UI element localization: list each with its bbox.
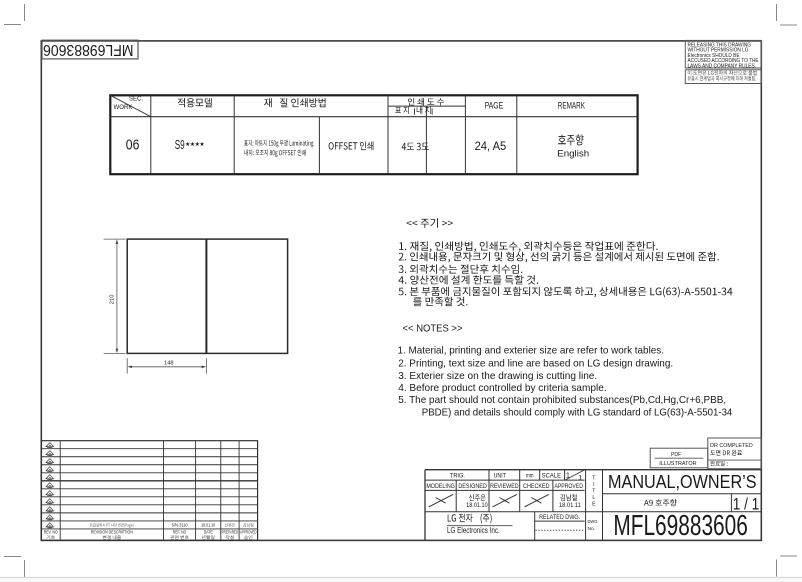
svg-text:18.01.10: 18.01.10 xyxy=(466,503,488,509)
svg-text:APPROVED: APPROVED xyxy=(240,530,257,535)
svg-text:2. Printing, text size and lin: 2. Printing, text size and line are base… xyxy=(398,359,673,370)
svg-text:3. Exterier size on the drawin: 3. Exterier size on the drawing is cutti… xyxy=(398,371,597,382)
svg-text:18.01.10: 18.01.10 xyxy=(201,523,216,528)
svg-text:MFL69883606: MFL69883606 xyxy=(613,510,748,542)
svg-text:1: 1 xyxy=(578,473,582,482)
svg-text:CHECKED: CHECKED xyxy=(523,483,550,490)
svg-text:DATE: DATE xyxy=(204,530,213,535)
svg-text:LAWS AND COMPANY RULES.: LAWS AND COMPANY RULES. xyxy=(688,63,757,69)
svg-text:24, A5: 24, A5 xyxy=(475,139,507,153)
svg-text:DESIGNED: DESIGNED xyxy=(458,483,487,490)
svg-text:mm: mm xyxy=(526,472,534,479)
svg-text:PDF: PDF xyxy=(671,452,681,458)
svg-text:1. Material, printing and exte: 1. Material, printing and exterier size … xyxy=(398,345,665,356)
svg-text:MODELING: MODELING xyxy=(426,483,455,490)
svg-text:E: E xyxy=(592,502,596,508)
svg-text:L: L xyxy=(592,495,595,501)
svg-text:PAGE: PAGE xyxy=(485,101,504,111)
svg-text:UNIT: UNIT xyxy=(494,472,506,479)
svg-text:LG Electronics Inc.: LG Electronics Inc. xyxy=(447,526,500,535)
svg-text:MFL69883606: MFL69883606 xyxy=(43,41,134,58)
svg-text:06: 06 xyxy=(126,137,140,153)
svg-text:SEC.: SEC. xyxy=(129,96,143,103)
svg-text:210: 210 xyxy=(109,295,115,305)
svg-text:5. The part should not contain: 5. The part should not contain prohibite… xyxy=(398,395,726,406)
svg-text:SCALE: SCALE xyxy=(542,472,562,479)
svg-text:148: 148 xyxy=(164,360,174,366)
svg-text:MANUAL,OWNER’S: MANUAL,OWNER’S xyxy=(608,471,757,492)
svg-text:TRIG.: TRIG. xyxy=(450,472,465,479)
svg-text:I: I xyxy=(593,482,594,488)
svg-text:S9: S9 xyxy=(175,137,185,152)
svg-text:<< NOTES >>: << NOTES >> xyxy=(403,324,463,335)
svg-text:DR COMPLETED: DR COMPLETED xyxy=(710,443,753,449)
svg-text:REMARK: REMARK xyxy=(558,101,585,111)
svg-text:RELATED DWG.: RELATED DWG. xyxy=(539,514,580,521)
svg-text:DWG.: DWG. xyxy=(588,519,599,525)
svg-text:WORK: WORK xyxy=(114,104,133,111)
svg-text:PREPARED: PREPARED xyxy=(222,530,239,535)
svg-text:APPROVED: APPROVED xyxy=(554,483,583,490)
svg-text:REVISION DESCRIPTION: REVISION DESCRIPTION xyxy=(91,530,133,535)
svg-text:No.: No. xyxy=(588,526,596,532)
svg-text:4. Before product controlled b: 4. Before product controlled by criteria… xyxy=(398,383,607,394)
svg-text:REV. NO: REV. NO xyxy=(44,530,59,535)
svg-text:18.01.11: 18.01.11 xyxy=(559,503,582,509)
svg-text:S/N-3110: S/N-3110 xyxy=(172,523,189,528)
svg-text:ILLUSTRATOR: ILLUSTRATOR xyxy=(659,461,696,467)
svg-text:REVIEWED: REVIEWED xyxy=(490,483,519,490)
svg-text:REF. NO: REF. NO xyxy=(173,530,187,535)
svg-text:English: English xyxy=(557,149,589,159)
svg-text:PBDE) and details should compl: PBDE) and details should comply with LG … xyxy=(422,407,733,418)
